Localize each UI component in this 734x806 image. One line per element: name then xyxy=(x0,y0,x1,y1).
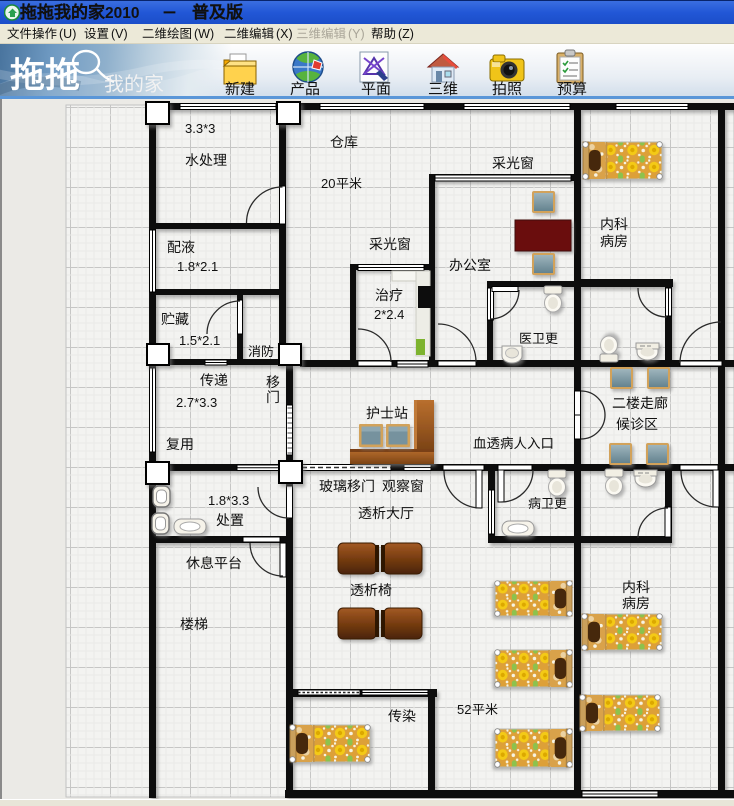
svg-text:20: 20 xyxy=(321,176,335,191)
svg-text:(X): (X) xyxy=(276,27,293,41)
svg-text:2*2.4: 2*2.4 xyxy=(374,307,404,322)
svg-text:2010: 2010 xyxy=(105,5,139,22)
svg-text:(Z): (Z) xyxy=(398,27,414,41)
svg-text:1.8*2.1: 1.8*2.1 xyxy=(177,259,218,274)
svg-text:(U): (U) xyxy=(59,27,76,41)
svg-text:1.8*3.3: 1.8*3.3 xyxy=(208,493,249,508)
svg-text:3.3*3: 3.3*3 xyxy=(185,121,215,136)
svg-text:2.7*3.3: 2.7*3.3 xyxy=(176,395,217,410)
svg-text:(Y): (Y) xyxy=(348,27,365,41)
svg-text:1.5*2.1: 1.5*2.1 xyxy=(179,333,220,348)
svg-text:52: 52 xyxy=(457,702,471,717)
svg-text:(V): (V) xyxy=(111,27,128,41)
svg-text:(W): (W) xyxy=(194,27,214,41)
